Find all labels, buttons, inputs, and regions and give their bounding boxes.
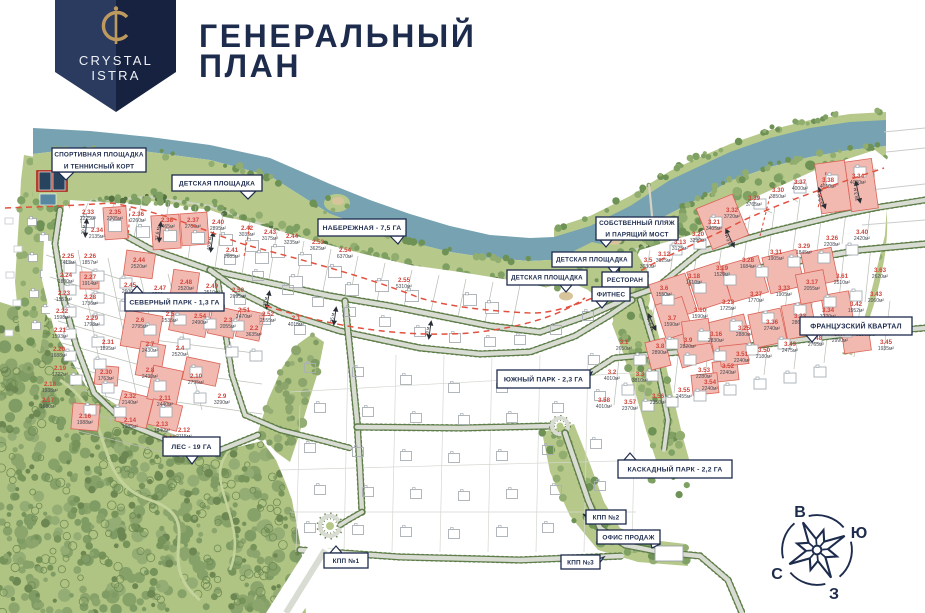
svg-text:3235м²: 3235м² xyxy=(284,240,301,246)
svg-text:3850м²: 3850м² xyxy=(770,194,787,200)
svg-text:3720м²: 3720м² xyxy=(724,214,741,220)
svg-text:4010м²: 4010м² xyxy=(604,376,621,382)
svg-text:2.52: 2.52 xyxy=(262,311,275,318)
svg-text:3.45: 3.45 xyxy=(880,339,893,346)
svg-text:2.48: 2.48 xyxy=(180,279,193,286)
svg-text:3.20: 3.20 xyxy=(692,231,705,238)
svg-text:1520м²: 1520м² xyxy=(714,272,731,278)
svg-text:1935м²: 1935м² xyxy=(878,346,895,352)
svg-text:3.33: 3.33 xyxy=(778,285,791,292)
svg-text:2.8: 2.8 xyxy=(146,367,155,374)
svg-text:1598м²: 1598м² xyxy=(54,315,71,321)
svg-text:1895м²: 1895м² xyxy=(100,346,117,352)
svg-text:2.9: 2.9 xyxy=(218,393,227,400)
svg-text:3.30: 3.30 xyxy=(772,187,785,194)
svg-text:3765м²: 3765м² xyxy=(746,202,763,208)
svg-text:2520м²: 2520м² xyxy=(178,286,195,292)
svg-text:1551м²: 1551м² xyxy=(56,297,73,303)
svg-text:4010м²: 4010м² xyxy=(596,404,613,410)
svg-text:1590м²: 1590м² xyxy=(692,314,709,320)
svg-text:Ю: Ю xyxy=(851,525,868,542)
svg-text:2.42: 2.42 xyxy=(241,225,254,232)
svg-text:2.14: 2.14 xyxy=(124,417,137,424)
svg-text:2520м²: 2520м² xyxy=(172,352,189,358)
svg-text:2.55: 2.55 xyxy=(398,277,411,284)
svg-text:3.12: 3.12 xyxy=(658,251,671,258)
svg-text:3635м²: 3635м² xyxy=(246,332,263,338)
svg-text:2.6: 2.6 xyxy=(136,317,145,324)
svg-text:2.24: 2.24 xyxy=(60,272,73,279)
svg-text:2470м²: 2470м² xyxy=(236,314,253,320)
svg-text:2430м²: 2430м² xyxy=(142,374,159,380)
svg-text:2.5: 2.5 xyxy=(166,311,175,318)
svg-text:2.19: 2.19 xyxy=(54,365,67,372)
svg-text:1905м²: 1905м² xyxy=(776,292,793,298)
svg-text:1952м²: 1952м² xyxy=(848,308,865,314)
svg-text:2895м²: 2895м² xyxy=(210,226,227,232)
svg-text:3175м²: 3175м² xyxy=(262,236,279,242)
svg-text:СОБСТВЕННЫЙ ПЛЯЖ: СОБСТВЕННЫЙ ПЛЯЖ xyxy=(599,218,675,227)
svg-text:3.34: 3.34 xyxy=(852,173,865,180)
svg-text:3.56: 3.56 xyxy=(652,393,665,400)
svg-text:2650м²: 2650м² xyxy=(616,346,633,352)
svg-text:2880м²: 2880м² xyxy=(736,332,753,338)
svg-text:3.57: 3.57 xyxy=(624,399,637,406)
svg-text:СЕВЕРНЫЙ ПАРК - 1,3 ГА: СЕВЕРНЫЙ ПАРК - 1,3 ГА xyxy=(129,297,219,306)
svg-text:3.28: 3.28 xyxy=(742,257,755,264)
svg-text:И ПАРЯЩИЙ МОСТ: И ПАРЯЩИЙ МОСТ xyxy=(605,230,668,239)
svg-text:3.53: 3.53 xyxy=(698,367,711,374)
svg-text:3.6: 3.6 xyxy=(660,285,669,292)
svg-text:1413м²: 1413м² xyxy=(60,260,77,266)
svg-text:2510м²: 2510м² xyxy=(834,280,851,286)
svg-text:2.34: 2.34 xyxy=(91,227,104,234)
svg-text:ФИТНЕС: ФИТНЕС xyxy=(597,291,626,298)
svg-text:2795м²: 2795м² xyxy=(132,324,149,330)
svg-text:3.37: 3.37 xyxy=(794,179,807,186)
svg-text:2370м²: 2370м² xyxy=(622,406,639,412)
svg-text:2420м²: 2420м² xyxy=(854,236,871,242)
svg-text:КПП №2: КПП №2 xyxy=(593,514,620,521)
svg-text:2.17: 2.17 xyxy=(42,397,55,404)
svg-text:2.54: 2.54 xyxy=(194,313,207,320)
svg-text:2620м²: 2620м² xyxy=(872,274,889,280)
svg-text:1610м²: 1610м² xyxy=(686,280,703,286)
svg-text:2.49: 2.49 xyxy=(206,283,219,290)
svg-text:2.33: 2.33 xyxy=(82,209,95,216)
svg-text:1763м²: 1763м² xyxy=(98,376,115,382)
svg-text:2820м²: 2820м² xyxy=(680,344,697,350)
svg-text:3.36: 3.36 xyxy=(766,319,779,326)
svg-text:2205м²: 2205м² xyxy=(107,216,124,222)
svg-text:3.32: 3.32 xyxy=(726,207,739,214)
svg-text:2055м²: 2055м² xyxy=(804,286,821,292)
svg-text:2140м²: 2140м² xyxy=(122,400,139,406)
svg-text:2135м²: 2135м² xyxy=(89,234,106,240)
svg-text:2.37: 2.37 xyxy=(187,217,200,224)
svg-text:3.2: 3.2 xyxy=(608,369,617,376)
svg-text:КПП №3: КПП №3 xyxy=(567,559,594,566)
svg-text:СПОРТИВНАЯ ПЛОЩАДКА: СПОРТИВНАЯ ПЛОЩАДКА xyxy=(54,151,144,158)
svg-text:2440м²: 2440м² xyxy=(157,402,174,408)
svg-text:3.27: 3.27 xyxy=(750,291,763,298)
svg-text:2055м²: 2055м² xyxy=(220,324,237,330)
svg-text:ЮЖНЫЙ ПАРК - 2,3 ГА: ЮЖНЫЙ ПАРК - 2,3 ГА xyxy=(504,374,583,383)
svg-text:1798м²: 1798м² xyxy=(84,322,101,328)
svg-text:3.26: 3.26 xyxy=(826,235,839,242)
svg-text:3.61: 3.61 xyxy=(836,273,849,280)
svg-text:2740м²: 2740м² xyxy=(764,326,781,332)
svg-text:2490м²: 2490м² xyxy=(192,320,209,326)
svg-text:2.35: 2.35 xyxy=(109,209,122,216)
svg-text:ЛЕС - 19 ГА: ЛЕС - 19 ГА xyxy=(171,444,211,451)
svg-text:2.21: 2.21 xyxy=(54,327,67,334)
svg-text:2240м²: 2240м² xyxy=(720,370,737,376)
svg-text:2830м²: 2830м² xyxy=(708,338,725,344)
svg-text:2.16: 2.16 xyxy=(79,413,92,420)
svg-text:3.34: 3.34 xyxy=(822,307,835,314)
svg-text:ISTRA: ISTRA xyxy=(91,68,140,83)
svg-text:1914м²: 1914м² xyxy=(82,281,99,287)
svg-text:3.51: 3.51 xyxy=(736,351,749,358)
svg-text:2180м²: 2180м² xyxy=(756,354,773,360)
svg-text:2.20: 2.20 xyxy=(53,346,66,353)
svg-text:3.50: 3.50 xyxy=(758,347,771,354)
svg-text:2208м²: 2208м² xyxy=(824,242,841,248)
svg-text:ПЛАН: ПЛАН xyxy=(199,48,301,84)
svg-text:КПП №1: КПП №1 xyxy=(333,558,360,565)
svg-text:2685м²: 2685м² xyxy=(224,254,241,260)
svg-text:2455м²: 2455м² xyxy=(676,394,693,400)
svg-text:CRYSTAL: CRYSTAL xyxy=(79,53,153,68)
svg-text:2225м²: 2225м² xyxy=(80,216,97,222)
svg-text:4000м²: 4000м² xyxy=(792,186,809,192)
svg-text:3405м²: 3405м² xyxy=(706,226,723,232)
svg-text:1684м²: 1684м² xyxy=(740,264,757,270)
svg-text:З: З xyxy=(829,586,839,603)
svg-text:2260м²: 2260м² xyxy=(130,218,147,224)
svg-text:3.18: 3.18 xyxy=(688,273,701,280)
svg-text:2695м²: 2695м² xyxy=(230,294,247,300)
svg-text:2.51: 2.51 xyxy=(238,307,251,314)
svg-text:3.16: 3.16 xyxy=(710,331,723,338)
svg-text:2.26: 2.26 xyxy=(84,253,97,260)
svg-text:2535м²: 2535м² xyxy=(162,318,179,324)
svg-text:3.31: 3.31 xyxy=(770,249,783,256)
svg-text:1550м²: 1550м² xyxy=(656,292,673,298)
svg-text:2.43: 2.43 xyxy=(264,229,277,236)
svg-text:КАСКАДНЫЙ ПАРК - 2,2 ГА: КАСКАДНЫЙ ПАРК - 2,2 ГА xyxy=(627,464,722,473)
svg-text:2.18: 2.18 xyxy=(44,381,57,388)
svg-text:2520м²: 2520м² xyxy=(131,264,148,270)
svg-text:3.8: 3.8 xyxy=(656,343,665,350)
svg-text:2555м²: 2555м² xyxy=(260,318,277,324)
svg-text:2.2: 2.2 xyxy=(250,325,259,332)
svg-text:3035м²: 3035м² xyxy=(239,232,256,238)
svg-text:2475м²: 2475м² xyxy=(782,348,799,354)
svg-text:2.4: 2.4 xyxy=(176,345,185,352)
svg-text:3.23: 3.23 xyxy=(722,299,735,306)
svg-text:2.32: 2.32 xyxy=(124,393,137,400)
svg-text:1770м²: 1770м² xyxy=(748,298,765,304)
svg-text:2.11: 2.11 xyxy=(159,395,171,402)
svg-text:3.63: 3.63 xyxy=(874,267,887,274)
svg-text:3.10: 3.10 xyxy=(694,307,707,314)
svg-text:3.54: 3.54 xyxy=(704,379,717,386)
svg-text:3.1: 3.1 xyxy=(620,339,629,346)
svg-text:1938м²: 1938м² xyxy=(42,388,59,394)
svg-text:2.54: 2.54 xyxy=(339,247,352,254)
svg-text:2.27: 2.27 xyxy=(84,274,97,281)
svg-text:3.43: 3.43 xyxy=(870,291,883,298)
svg-text:3.3: 3.3 xyxy=(636,371,645,378)
svg-text:1905м²: 1905м² xyxy=(768,256,785,262)
svg-text:3.55: 3.55 xyxy=(678,387,691,394)
svg-text:2.41: 2.41 xyxy=(226,247,239,254)
svg-text:3.39: 3.39 xyxy=(748,195,761,202)
svg-text:1593м²: 1593м² xyxy=(52,334,69,340)
svg-text:2795м²: 2795м² xyxy=(188,380,205,386)
svg-text:1722м²: 1722м² xyxy=(52,372,69,378)
svg-text:2.7: 2.7 xyxy=(146,341,155,348)
svg-text:3.9: 3.9 xyxy=(684,337,693,344)
svg-text:3810м²: 3810м² xyxy=(632,378,649,384)
svg-text:3.40: 3.40 xyxy=(856,229,869,236)
svg-text:И ТЕННИСНЫЙ КОРТ: И ТЕННИСНЫЙ КОРТ xyxy=(64,161,134,170)
svg-text:2.50: 2.50 xyxy=(232,287,245,294)
svg-text:2.30: 2.30 xyxy=(100,369,113,376)
svg-text:3.5: 3.5 xyxy=(644,257,653,264)
svg-text:3625м²: 3625м² xyxy=(310,246,327,252)
svg-text:3.52: 3.52 xyxy=(722,363,735,370)
svg-text:2.29: 2.29 xyxy=(86,315,99,322)
svg-text:2.44: 2.44 xyxy=(133,257,146,264)
svg-text:2.25: 2.25 xyxy=(62,253,75,260)
svg-text:2430м²: 2430м² xyxy=(142,348,159,354)
svg-text:3.29: 3.29 xyxy=(798,243,811,250)
svg-text:5310м²: 5310м² xyxy=(396,284,413,290)
svg-text:3.19: 3.19 xyxy=(716,265,729,272)
svg-text:20 м: 20 м xyxy=(80,225,86,235)
svg-text:3.25: 3.25 xyxy=(738,325,751,332)
svg-text:3.7: 3.7 xyxy=(668,315,677,322)
svg-text:ДЕТСКАЯ ПЛОЩАДКА: ДЕТСКАЯ ПЛОЩАДКА xyxy=(511,275,583,282)
svg-text:4015м²: 4015м² xyxy=(288,322,305,328)
svg-text:3.42: 3.42 xyxy=(850,301,863,308)
svg-text:1590м²: 1590м² xyxy=(664,322,681,328)
svg-text:С: С xyxy=(771,566,783,583)
svg-text:1940м²: 1940м² xyxy=(154,428,171,434)
svg-text:2.13: 2.13 xyxy=(156,421,169,428)
svg-text:3.21: 3.21 xyxy=(708,219,721,226)
svg-text:2.12: 2.12 xyxy=(178,427,191,434)
svg-text:2.36: 2.36 xyxy=(132,211,145,218)
svg-text:2.10: 2.10 xyxy=(190,373,203,380)
svg-text:2990м²: 2990м² xyxy=(832,338,849,344)
svg-text:6370м²: 6370м² xyxy=(337,254,354,260)
svg-text:2.3: 2.3 xyxy=(224,317,233,324)
svg-text:2.31: 2.31 xyxy=(102,339,115,346)
svg-text:НАБЕРЕЖНАЯ - 7,5 ГА: НАБЕРЕЖНАЯ - 7,5 ГА xyxy=(323,225,402,232)
svg-text:3290м²: 3290м² xyxy=(690,238,707,244)
svg-text:2765м²: 2765м² xyxy=(808,342,825,348)
svg-text:2060м²: 2060м² xyxy=(868,298,885,304)
svg-text:2.44: 2.44 xyxy=(286,233,299,240)
svg-text:3025м²: 3025м² xyxy=(656,258,673,264)
svg-text:1688м²: 1688м² xyxy=(51,353,68,359)
svg-text:ДЕТСКАЯ ПЛОЩАДКА: ДЕТСКАЯ ПЛОЩАДКА xyxy=(556,257,628,264)
svg-text:2.47: 2.47 xyxy=(154,285,167,292)
svg-text:1736м²: 1736м² xyxy=(82,301,99,307)
svg-text:3.58: 3.58 xyxy=(598,397,611,404)
svg-text:3290м²: 3290м² xyxy=(214,400,231,406)
svg-text:ОФИС ПРОДАЖ: ОФИС ПРОДАЖ xyxy=(602,534,654,541)
svg-text:2.28: 2.28 xyxy=(84,294,97,301)
svg-text:2240м²: 2240м² xyxy=(734,358,751,364)
svg-text:2.40: 2.40 xyxy=(212,219,225,226)
svg-text:2.53: 2.53 xyxy=(312,239,325,246)
svg-text:1725м²: 1725м² xyxy=(720,306,737,312)
svg-text:2240м²: 2240м² xyxy=(702,386,719,392)
svg-text:1988м²: 1988м² xyxy=(77,420,94,426)
svg-text:1857м²: 1857м² xyxy=(82,260,99,266)
svg-text:2.23: 2.23 xyxy=(58,290,71,297)
svg-text:РЕСТОРАН: РЕСТОРАН xyxy=(607,277,643,284)
svg-text:2350м²: 2350м² xyxy=(650,400,667,406)
svg-text:В: В xyxy=(794,504,806,521)
svg-text:3.17: 3.17 xyxy=(806,279,819,286)
svg-text:ДЕТСКАЯ ПЛОЩАДКА: ДЕТСКАЯ ПЛОЩАДКА xyxy=(179,180,255,187)
svg-text:3.49: 3.49 xyxy=(784,341,797,348)
svg-text:1680м²: 1680м² xyxy=(40,404,57,410)
svg-text:2890м²: 2890м² xyxy=(652,350,669,356)
svg-text:2280м²: 2280м² xyxy=(696,374,713,380)
svg-text:2.22: 2.22 xyxy=(56,308,69,315)
svg-text:1845м²: 1845м² xyxy=(796,250,813,256)
svg-text:1830м²: 1830м² xyxy=(58,279,75,285)
svg-text:1985м²: 1985м² xyxy=(122,424,139,430)
svg-text:ФРАНЦУЗСКИЙ КВАРТАЛ: ФРАНЦУЗСКИЙ КВАРТАЛ xyxy=(810,322,901,331)
